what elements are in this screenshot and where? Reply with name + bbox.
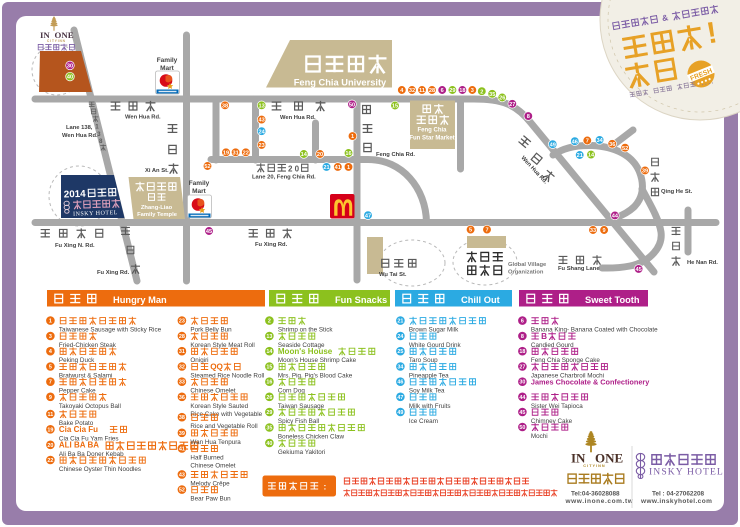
svg-text:Hungry Man: Hungry Man (113, 295, 167, 305)
svg-text:Bear Paw Bun: Bear Paw Bun (190, 496, 231, 503)
svg-text:20: 20 (47, 443, 53, 449)
svg-text:14: 14 (588, 153, 595, 159)
svg-text:46: 46 (397, 380, 403, 386)
svg-text:20: 20 (317, 152, 323, 158)
svg-text:26: 26 (266, 395, 272, 401)
svg-text:Cia Cia Fu: Cia Cia Fu (59, 425, 98, 434)
svg-text:Chill Out: Chill Out (461, 295, 500, 305)
svg-text:1: 1 (351, 134, 354, 140)
svg-text:18: 18 (519, 349, 525, 355)
svg-text:2: 2 (480, 89, 483, 95)
svg-text:33: 33 (179, 380, 185, 386)
svg-text:8: 8 (527, 114, 530, 120)
svg-text:James Chocolate & Confectioner: James Chocolate & Confectionery (531, 378, 650, 387)
svg-text:Family: Family (157, 57, 178, 64)
svg-text:Mochi: Mochi (531, 433, 548, 440)
svg-text:Wu Tai St.: Wu Tai St. (379, 272, 407, 278)
svg-text:28: 28 (429, 88, 435, 94)
svg-text:21: 21 (397, 319, 403, 325)
svg-text:INSKY HOTEL: INSKY HOTEL (649, 467, 724, 478)
svg-text:Ice Cream: Ice Cream (409, 418, 438, 425)
svg-text:3: 3 (49, 334, 52, 340)
svg-text:36: 36 (179, 395, 185, 401)
svg-text:13: 13 (266, 334, 272, 340)
svg-text:3: 3 (97, 131, 101, 138)
svg-text:Wen Hua Rd.: Wen Hua Rd. (62, 133, 98, 139)
svg-text:9: 9 (603, 228, 606, 234)
svg-text:49: 49 (550, 142, 556, 148)
svg-text:Mart: Mart (192, 188, 207, 195)
svg-text:26: 26 (499, 96, 505, 102)
svg-text:Fu Xing N. Rd.: Fu Xing N. Rd. (55, 243, 95, 249)
svg-text:34: 34 (397, 365, 403, 371)
svg-text:8: 8 (99, 138, 103, 145)
svg-text:31: 31 (179, 349, 185, 355)
svg-text:C I T Y I N N: C I T Y I N N (47, 39, 66, 43)
svg-text:30: 30 (67, 64, 73, 70)
svg-text:Taiwanese Sausage with Sticky: Taiwanese Sausage with Sticky Rice (59, 327, 162, 334)
svg-text:16: 16 (266, 380, 272, 386)
svg-text:Pork Belly Bun: Pork Belly Bun (190, 327, 232, 334)
svg-text:Fu Xing Rd.: Fu Xing Rd. (255, 242, 288, 248)
svg-text:28: 28 (179, 334, 185, 340)
svg-text:Takoyaki Octopus Ball: Takoyaki Octopus Ball (59, 403, 121, 410)
svg-text:32: 32 (179, 365, 185, 371)
svg-text:Organization: Organization (508, 270, 544, 276)
svg-text:www.inone.com.tw: www.inone.com.tw (565, 498, 634, 505)
svg-text:ALI BA BA: ALI BA BA (59, 441, 99, 450)
svg-text:Korean Style Sauted: Korean Style Sauted (190, 403, 248, 410)
svg-text:35: 35 (489, 92, 495, 98)
svg-text:Wen Hua Rd.: Wen Hua Rd. (280, 115, 316, 121)
svg-text:41: 41 (335, 165, 341, 171)
svg-text:7: 7 (485, 228, 488, 234)
svg-text:27: 27 (519, 365, 525, 371)
svg-text:19: 19 (47, 427, 53, 433)
svg-text:2014: 2014 (64, 189, 87, 201)
svg-text:13: 13 (258, 103, 264, 109)
svg-text:18: 18 (459, 88, 465, 94)
svg-text:Fu Xing Rd.: Fu Xing Rd. (97, 270, 130, 276)
svg-text:Fun Star Market: Fun Star Market (409, 136, 454, 142)
svg-text:52: 52 (179, 488, 185, 494)
svg-text:34: 34 (596, 138, 603, 144)
svg-text:45: 45 (519, 410, 525, 416)
svg-text:Qing He St.: Qing He St. (661, 189, 693, 195)
svg-text:7: 7 (586, 139, 589, 145)
svg-text:40: 40 (67, 75, 73, 81)
svg-text:Shrimp on the Stick: Shrimp on the Stick (278, 327, 333, 334)
svg-text:39: 39 (179, 431, 185, 437)
svg-text:39: 39 (642, 169, 648, 175)
svg-text:Boneless Chicken Claw: Boneless Chicken Claw (278, 434, 345, 441)
svg-text:46: 46 (572, 139, 578, 145)
svg-text:Moon's House: Moon's House (278, 347, 333, 356)
svg-text:47: 47 (397, 395, 403, 401)
svg-text:25: 25 (397, 349, 403, 355)
svg-text:23: 23 (179, 319, 185, 325)
svg-text:35: 35 (266, 426, 272, 432)
svg-text:38: 38 (179, 415, 185, 421)
svg-text:B: B (541, 332, 547, 341)
svg-text:Sweet Tooth: Sweet Tooth (585, 295, 640, 305)
svg-text:www.inskyhotel.com: www.inskyhotel.com (640, 498, 712, 505)
svg-text:6: 6 (441, 88, 444, 94)
svg-text:Fun Snacks: Fun Snacks (335, 295, 387, 305)
svg-text:19: 19 (223, 150, 229, 156)
svg-text:Brown Sugar Milk: Brown Sugar Milk (409, 327, 459, 334)
svg-text:50: 50 (349, 102, 355, 108)
svg-text:40: 40 (266, 441, 272, 447)
svg-text:1: 1 (347, 165, 350, 171)
svg-text:Tel : 04-27062208: Tel : 04-27062208 (652, 490, 705, 497)
svg-text:47: 47 (365, 213, 371, 219)
svg-text:11: 11 (419, 88, 425, 94)
svg-text:23: 23 (258, 143, 264, 149)
svg-text:52: 52 (622, 146, 628, 152)
svg-text:Fried-Chicken Steak: Fried-Chicken Steak (59, 342, 117, 349)
svg-text:Feng Chia Rd.: Feng Chia Rd. (376, 152, 415, 158)
svg-text:Wan Hua Tenpura: Wan Hua Tenpura (190, 439, 241, 446)
svg-text:32: 32 (409, 88, 415, 94)
svg-text:15: 15 (392, 104, 398, 110)
svg-text:Feng Chia University: Feng Chia University (294, 78, 387, 88)
svg-text:31: 31 (232, 150, 238, 156)
svg-text:22: 22 (243, 150, 249, 156)
svg-text:29: 29 (449, 88, 455, 94)
svg-text:Half Burned: Half Burned (190, 454, 224, 461)
svg-text:C I T Y I N N: C I T Y I N N (583, 464, 605, 468)
svg-text:24: 24 (258, 129, 265, 135)
svg-text:6: 6 (521, 319, 524, 325)
svg-text:Rice and Vegetable Roll: Rice and Vegetable Roll (190, 423, 257, 430)
svg-text:Family: Family (189, 180, 210, 187)
svg-text:Banana King- Banana Coated wit: Banana King- Banana Coated with Chocolat… (531, 327, 658, 334)
svg-text:50: 50 (519, 425, 525, 431)
svg-text:16: 16 (345, 151, 351, 157)
svg-text:9: 9 (49, 395, 52, 401)
svg-text:41: 41 (179, 446, 185, 452)
svg-text:Moon's House Shrimp Cake: Moon's House Shrimp Cake (278, 357, 357, 364)
svg-text:Wen Hua Rd.: Wen Hua Rd. (125, 115, 161, 121)
svg-text:Lane 20, Feng Chia Rd.: Lane 20, Feng Chia Rd. (252, 175, 316, 181)
svg-text:30: 30 (519, 380, 525, 386)
svg-text:5: 5 (49, 365, 52, 371)
svg-text:2: 2 (268, 319, 271, 325)
svg-text:QQ: QQ (210, 362, 223, 371)
svg-text:8: 8 (521, 334, 524, 340)
svg-text::: : (324, 482, 327, 492)
svg-text:49: 49 (397, 410, 403, 416)
svg-text:Family Temple: Family Temple (137, 212, 178, 218)
svg-text:Global Village: Global Village (508, 262, 547, 268)
svg-text:21: 21 (323, 165, 329, 171)
svg-text:Xi An St.: Xi An St. (145, 168, 169, 174)
svg-text:Fu Shang Lane: Fu Shang Lane (558, 266, 600, 272)
svg-text:15: 15 (266, 365, 272, 371)
svg-text:14: 14 (301, 152, 308, 158)
svg-text:5: 5 (469, 228, 472, 234)
svg-text:Spicy Fish Ball: Spicy Fish Ball (278, 418, 319, 425)
svg-text:36: 36 (609, 142, 615, 148)
svg-text:33: 33 (590, 228, 596, 234)
svg-text:Lane 138,: Lane 138, (66, 125, 93, 131)
svg-text:Chinese Omelet: Chinese Omelet (190, 462, 235, 469)
svg-text:11: 11 (48, 412, 54, 418)
svg-text:2 0: 2 0 (288, 165, 300, 174)
svg-text:52: 52 (204, 164, 210, 170)
svg-text:1: 1 (49, 319, 52, 325)
svg-text:3: 3 (471, 88, 474, 94)
svg-text:Chinese Oyster Thin Noodles: Chinese Oyster Thin Noodles (59, 466, 141, 473)
svg-text:38: 38 (222, 103, 228, 109)
svg-text:He Nan Rd.: He Nan Rd. (687, 260, 718, 266)
svg-text:Feng Chia: Feng Chia (417, 128, 447, 134)
svg-text:27: 27 (509, 102, 515, 108)
svg-text:Tel:04-36028088: Tel:04-36028088 (571, 490, 620, 497)
svg-text:21: 21 (577, 153, 583, 159)
svg-text:29: 29 (266, 410, 272, 416)
svg-text:45: 45 (635, 267, 641, 273)
svg-text:43: 43 (179, 472, 185, 478)
svg-text:1: 1 (95, 124, 99, 131)
svg-text:14: 14 (266, 349, 272, 355)
svg-text:Gekiuma Yakitori: Gekiuma Yakitori (278, 449, 325, 456)
svg-text:24: 24 (397, 334, 403, 340)
svg-text:44: 44 (612, 214, 619, 220)
svg-text:Zhang-Liao: Zhang-Liao (141, 205, 173, 211)
svg-text:4: 4 (49, 349, 52, 355)
svg-text:7: 7 (49, 380, 52, 386)
svg-text:22: 22 (47, 458, 53, 464)
svg-text:45: 45 (206, 229, 212, 235)
svg-text:43: 43 (258, 118, 264, 124)
svg-text:44: 44 (519, 395, 525, 401)
